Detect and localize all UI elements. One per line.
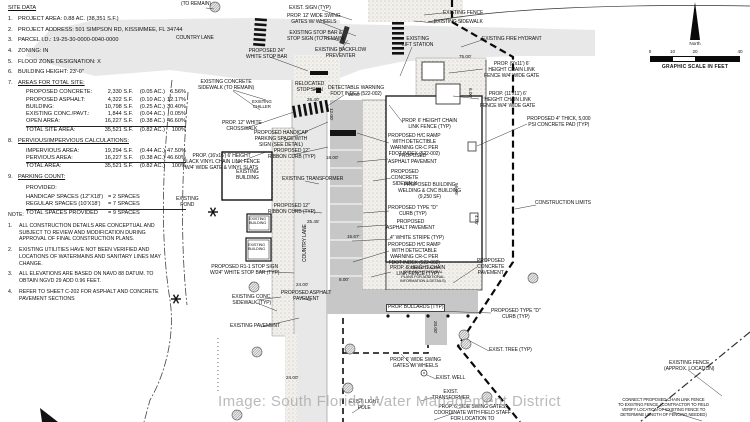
relocated-stop-sign-mark: [316, 88, 321, 93]
site-plan-page: SITE DATA 1.PROJECT AREA: 0.88 AC. (38,3…: [0, 0, 750, 422]
site-data-item: 9.PARKING COUNT:: [8, 173, 236, 181]
note-item: 4.REFER TO SHEET C-202 FOR ASPHALT AND C…: [8, 289, 166, 303]
site-data-table-row: HANDICAP SPACES (12"X18')= 2 SPACES: [26, 194, 186, 201]
site-data-table: IMPERVIOUS AREA:19,294 S.F.(0.44 AC.)47.…: [26, 148, 236, 171]
compass-block: North 0102040 GRAPHIC SCALE IN FEET: [650, 2, 740, 70]
notes-title: NOTE:: [8, 212, 166, 219]
site-data-table-row: PERVIOUS AREA:16,227 S.F.(0.38 AC.)46.60…: [26, 155, 186, 163]
scale-ticks: 0102040: [650, 49, 740, 56]
proposed-building: [386, 96, 482, 262]
site-data-table: PROPOSED CONCRETE:2,330 S.F.(0.05 AC.)6.…: [26, 89, 236, 134]
site-data-item: 2.PROJECT ADDRESS: 501 SIMPSON RD, KISSI…: [8, 26, 236, 34]
scale-tick: 40: [737, 49, 742, 54]
site-data-item: 6.BUILDING HEIGHT: 23'-0": [8, 68, 236, 76]
scale-bar: [650, 56, 740, 62]
light-pole-mark: [40, 408, 58, 422]
notes-block: NOTE: 1.ALL CONSTRUCTION DETAILS ARE CON…: [8, 212, 166, 306]
site-data-item: 4.ZONING: IN: [8, 47, 236, 55]
north-label: North: [650, 41, 740, 46]
site-data-table-row: TOTAL AREA:35,521 S.F.(0.82 AC.)100%: [26, 163, 186, 170]
site-data-table-row: OPEN AREA:16,227 S.F.(0.38 AC.)46.60%: [26, 118, 186, 126]
site-data-item: 7.AREAS FOR TOTAL SITE:: [8, 79, 236, 87]
site-data-table-row: PROPOSED CONCRETE:2,330 S.F.(0.05 AC.)6.…: [26, 89, 186, 96]
site-data-item: 5.FLOOD ZONE DESIGNATION: X: [8, 58, 236, 66]
site-data-item: 1.PROJECT AREA: 0.88 AC. (38,351 S.F.): [8, 15, 236, 23]
site-data-table-row: TOTAL SITE AREA:35,521 S.F.(0.82 AC.)100…: [26, 127, 186, 134]
star-symbols: [171, 208, 218, 304]
lift-station-structure-1: [422, 62, 444, 80]
site-data-item: 8.PERVIOUS/IMPERVIOUS CALCULATIONS:: [8, 137, 236, 145]
site-data-block: SITE DATA 1.PROJECT AREA: 0.88 AC. (38,3…: [8, 4, 236, 220]
note-item: 2.EXISTING UTILITIES HAVE NOT BEEN VERIF…: [8, 247, 166, 267]
concrete-pad-2: [470, 213, 478, 222]
site-data-item: 3.PARCEL I.D.: 19-25-30-0000-0040-0000: [8, 36, 236, 44]
scale-tick: 20: [692, 49, 697, 54]
hc-ramp-warning-strip: [330, 130, 356, 136]
site-data-table-row: PROPOSED ASPHALT:4,322 S.F.(0.10 AC.)12.…: [26, 97, 186, 104]
site-data-subheading: PROVIDED:: [26, 184, 236, 192]
existing-stop-bar: [310, 71, 328, 75]
note-item: 1.ALL CONSTRUCTION DETAILS ARE CONCEPTUA…: [8, 223, 166, 243]
scale-tick: 10: [670, 49, 675, 54]
existing-fence-approx-line: [640, 332, 750, 422]
north-arrow-icon: [690, 2, 700, 40]
lift-station-structure-2: [436, 84, 460, 104]
existing-building-small-2: [246, 238, 271, 261]
site-data-table-row: EXISTING CONC./PAVT.:1,844 S.F.(0.04 AC.…: [26, 111, 186, 118]
note-item: 3.ALL ELEVATIONS ARE BASED ON NAVD 88 DA…: [8, 271, 166, 285]
scale-tick: 0: [649, 49, 652, 54]
existing-building-small-1: [247, 214, 271, 232]
site-data-title: SITE DATA: [8, 4, 236, 12]
concrete-pad-1: [468, 142, 476, 151]
site-data-table-row: REGULAR SPACES (10'X18')= 7 SPACES: [26, 201, 186, 209]
notes-items: 1.ALL CONSTRUCTION DETAILS ARE CONCEPTUA…: [8, 223, 166, 303]
site-data-table-row: BUILDING:10,798 S.F.(0.25 AC.)30.40%: [26, 104, 186, 111]
site-data-table-row: IMPERVIOUS AREA:19,294 S.F.(0.44 AC.)47.…: [26, 148, 186, 155]
scale-caption: GRAPHIC SCALE IN FEET: [650, 64, 740, 70]
site-data-items: 1.PROJECT AREA: 0.88 AC. (38,351 S.F.)2.…: [8, 15, 236, 217]
watermark-text: Image: South Florida Water Management Di…: [218, 393, 561, 410]
